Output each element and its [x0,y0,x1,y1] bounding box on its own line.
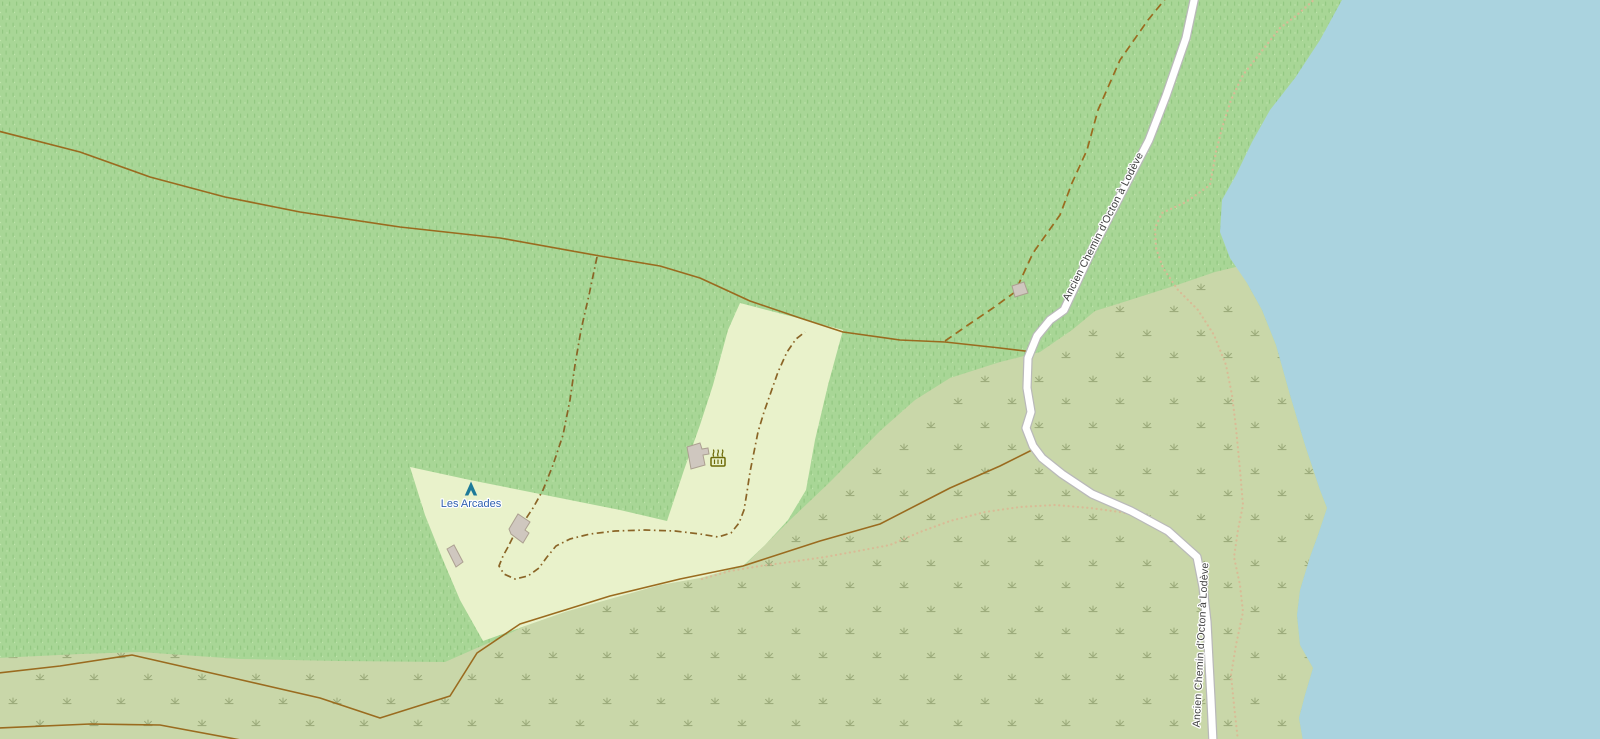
map-svg: Ancien Chemin d'Octon à LodèveAncien Che… [0,0,1600,739]
campsite-label: Les Arcades [441,498,502,510]
map-canvas[interactable]: Ancien Chemin d'Octon à LodèveAncien Che… [0,0,1600,739]
map-frame: Ancien Chemin d'Octon à LodèveAncien Che… [0,0,1600,739]
